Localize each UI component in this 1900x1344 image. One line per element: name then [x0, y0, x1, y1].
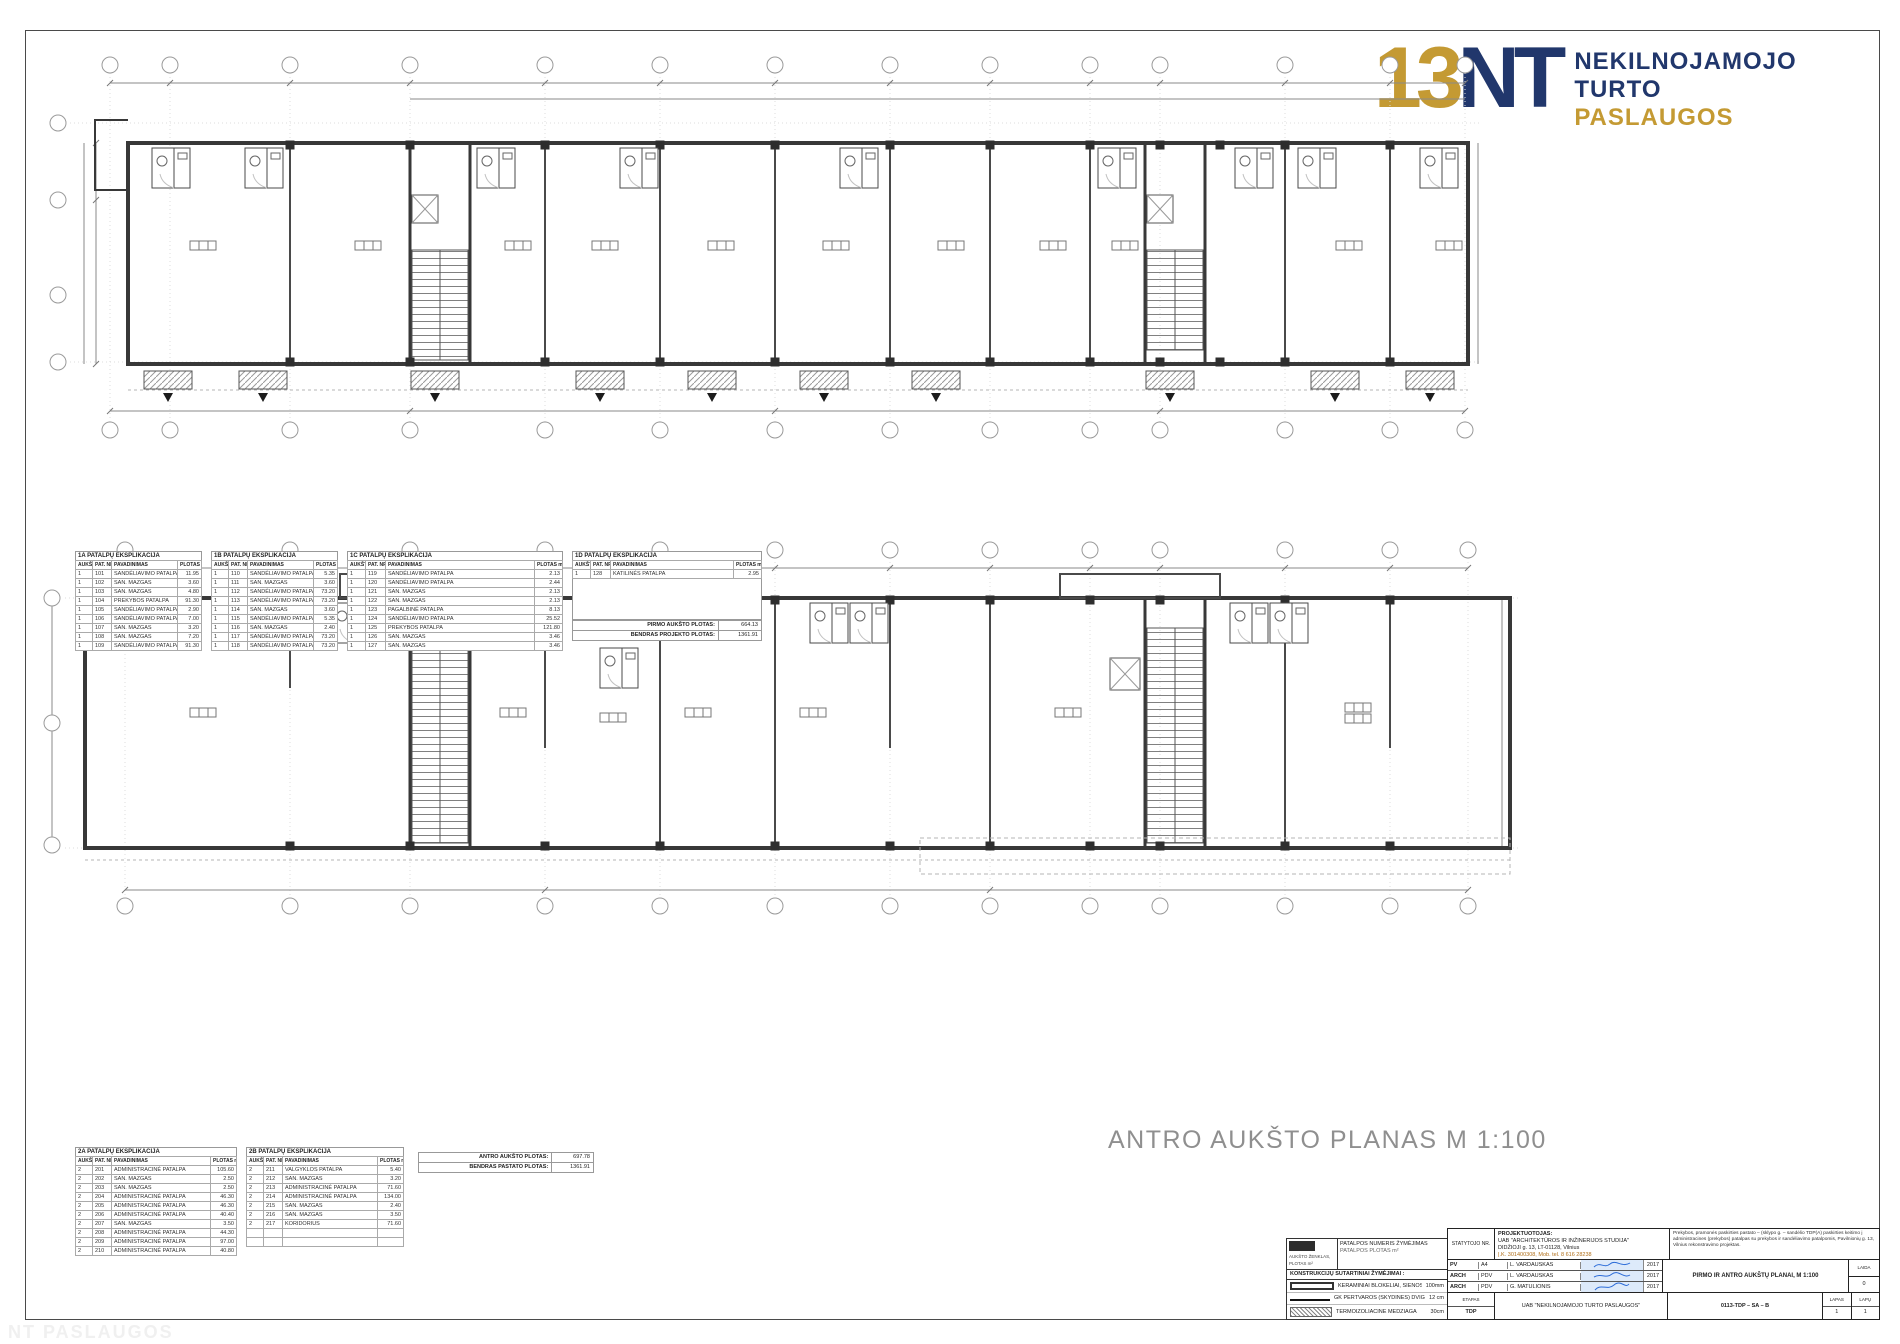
- left-annex-wall: [95, 120, 128, 190]
- signature-icon: [1581, 1282, 1644, 1292]
- table-cell: 664.13: [718, 621, 761, 631]
- table-cell: 97.00: [211, 1238, 237, 1247]
- table-cell: 215: [264, 1202, 283, 1211]
- table-cell: 206: [93, 1211, 112, 1220]
- sig-role: PV: [1448, 1262, 1479, 1269]
- table-cell: SAN. MAZGAS: [386, 588, 535, 597]
- table-row: 2212SAN. MAZGAS3.20: [247, 1175, 404, 1184]
- table-cell: 123: [366, 606, 386, 615]
- table-cell: ADMINISTRACINĖ PATALPA: [112, 1229, 211, 1238]
- table-cell: 2: [247, 1211, 264, 1220]
- table-cell: SAN. MAZGAS: [386, 597, 535, 606]
- table-row: 2211VALGYKLOS PATALPA5.40: [247, 1166, 404, 1175]
- table-row: 1120SANDĖLIAVIMO PATALPA2.44: [348, 579, 563, 588]
- table-cell: SAN. MAZGAS: [112, 1175, 211, 1184]
- owner-no-label: STATYTOJO NR.: [1448, 1229, 1495, 1259]
- table-cell: PAVADINIMAS: [611, 561, 734, 570]
- table-row: 2216SAN. MAZGAS3.50: [247, 1211, 404, 1220]
- table-cell: 5.35: [314, 570, 338, 579]
- designer-line-3: Į.K. 301400308, Mob. tel. 8 616 28238: [1498, 1252, 1666, 1259]
- table-cell: 2: [76, 1238, 93, 1247]
- table-title: 1C PATALPŲ EKSPLIKACIJA: [347, 551, 563, 560]
- table-cell: 104: [93, 597, 112, 606]
- table-cell: 207: [93, 1220, 112, 1229]
- table-cell: ADMINISTRACINĖ PATALPA: [112, 1166, 211, 1175]
- legend-row-name: TERMOIZOLIACINĖ MEDŽIAGA: [1336, 1309, 1427, 1316]
- table-row: PIRMO AUKŠTO PLOTAS:664.13: [573, 621, 762, 631]
- client-name: UAB "NEKILNOJAMOJO TURTO PASLAUGOS": [1495, 1293, 1668, 1319]
- table-cell: 2.50: [211, 1175, 237, 1184]
- sig-name: G. MATULIONIS: [1508, 1284, 1581, 1291]
- etapas-value: TDP: [1448, 1307, 1494, 1320]
- table-row: 1116SAN. MAZGAS2.40: [212, 624, 338, 633]
- table-cell: KATILINĖS PATALPA: [611, 570, 734, 579]
- table-cell: SANDĖLIAVIMO PATALPA: [386, 579, 535, 588]
- signature-row: PV A4 L. VARDAUSKAS 2017: [1448, 1260, 1662, 1271]
- table-cell: 1: [76, 615, 93, 624]
- table-cell: 2.44: [535, 579, 563, 588]
- table-cell: PAVADINIMAS: [386, 561, 535, 570]
- etapas-cell: ETAPAS TDP: [1448, 1293, 1495, 1319]
- table-cell: 1: [212, 615, 229, 624]
- table-cell: 216: [264, 1211, 283, 1220]
- sig-cert: PDV: [1479, 1273, 1508, 1280]
- table-cell: [247, 1229, 264, 1238]
- table-row: 2206ADMINISTRACINĖ PATALPA40.40: [76, 1211, 237, 1220]
- table-cell: 5.40: [378, 1166, 404, 1175]
- table-row: 2210ADMINISTRACINĖ PATALPA40.80: [76, 1247, 237, 1256]
- elevator-shaft: [1147, 195, 1173, 223]
- designer-cell: PROJEKTUOTOJAS: UAB "ARCHITEKTŪROS IR IN…: [1495, 1229, 1670, 1259]
- partition-line-swatch-icon: [1290, 1296, 1330, 1301]
- table-cell: 204: [93, 1193, 112, 1202]
- table-cell: 2: [76, 1220, 93, 1229]
- table-row: 1118SANDĖLIAVIMO PATALPA73.20: [212, 642, 338, 651]
- sig-name: L. VARDAUSKAS: [1508, 1273, 1581, 1280]
- table-cell: 210: [93, 1247, 112, 1256]
- table-cell: 2: [76, 1166, 93, 1175]
- table-cell: ADMINISTRACINĖ PATALPA: [112, 1247, 211, 1256]
- table-cell: 2: [76, 1193, 93, 1202]
- table-row: BENDRAS PASTATO PLOTAS:1361.91: [419, 1163, 594, 1173]
- table-row: 1128KATILINĖS PATALPA2.95: [573, 570, 762, 579]
- table-row: 1109SANDĖLIAVIMO PATALPA91.30: [76, 642, 202, 651]
- signature-row: ARCH PDV G. MATULIONIS 2017: [1448, 1282, 1662, 1292]
- floor2-summary: ANTRO AUKŠTO PLOTAS:697.78BENDRAS PASTAT…: [418, 1152, 594, 1173]
- legend-row-value: 12 cm: [1429, 1295, 1444, 1302]
- room-labels: [190, 241, 1462, 250]
- table-cell: 1: [212, 633, 229, 642]
- table-cell: 44.30: [211, 1229, 237, 1238]
- table-cell: 203: [93, 1184, 112, 1193]
- laida-label: LAIDA: [1849, 1260, 1879, 1277]
- table-cell: 2: [76, 1175, 93, 1184]
- table-cell: [283, 1238, 378, 1247]
- table-row: ANTRO AUKŠTO PLOTAS:697.78: [419, 1153, 594, 1163]
- table-cell: SANDĖLIAVIMO PATALPA: [248, 615, 314, 624]
- legend-strip-title: KONSTRUKCIJŲ SUTARTINIAI ŽYMĖJIMAI :: [1287, 1270, 1447, 1280]
- table-cell: PAGALBINĖ PATALPA: [386, 606, 535, 615]
- legend-row-name: KERAMINIAI BLOKELIAI, SIENOS: [1338, 1283, 1422, 1290]
- table-cell: 121.80: [535, 624, 563, 633]
- table-cell: 2: [247, 1166, 264, 1175]
- table-row: 2209ADMINISTRACINĖ PATALPA97.00: [76, 1238, 237, 1247]
- table-cell: 3.50: [211, 1220, 237, 1229]
- signature-icon: [1581, 1260, 1644, 1270]
- table-row: 1127SAN. MAZGAS3.46: [348, 642, 563, 651]
- elevator-shaft: [1110, 658, 1140, 690]
- table-cell: SAN. MAZGAS: [283, 1202, 378, 1211]
- table-cell: 73.20: [314, 597, 338, 606]
- table-row: 1104PREKYBOS PATALPA91.30: [76, 597, 202, 606]
- designer-label: PROJEKTUOTOJAS:: [1498, 1231, 1666, 1238]
- table-title: 2A PATALPŲ EKSPLIKACIJA: [75, 1147, 237, 1156]
- table-cell: 3.60: [314, 579, 338, 588]
- table-row: 2205ADMINISTRACINĖ PATALPA46.30: [76, 1202, 237, 1211]
- table-cell: SANDĖLIAVIMO PATALPA: [248, 597, 314, 606]
- table-cell: PIRMO AUKŠTO PLOTAS:: [573, 621, 719, 631]
- sig-name: L. VARDAUSKAS: [1508, 1262, 1581, 1269]
- table-cell: AUKŠT.: [76, 1157, 93, 1166]
- legend-note-1: PATALPOS NUMERIS ŽYMĖJIMAS: [1340, 1241, 1445, 1248]
- table-row: 1126SAN. MAZGAS3.46: [348, 633, 563, 642]
- second-floor-caption: ANTRO AUKŠTO PLANAS M 1:100: [1108, 1126, 1547, 1155]
- table-cell: 112: [229, 588, 248, 597]
- laida-cell: LAIDA 0: [1848, 1260, 1879, 1292]
- table-cell: 105: [93, 606, 112, 615]
- stamp-caption: AUKŠTO ŽENKLAS, PLOTAS m²: [1289, 1253, 1335, 1267]
- legend-row-value: 100mm: [1426, 1283, 1444, 1290]
- table-cell: 73.20: [314, 642, 338, 651]
- table-cell: 108: [93, 633, 112, 642]
- table-row: 1103SAN. MAZGAS4.80: [76, 588, 202, 597]
- table-row: 2201ADMINISTRACINĖ PATALPA105.60: [76, 1166, 237, 1175]
- table-cell: 214: [264, 1193, 283, 1202]
- explication-tables-floor2: 2A PATALPŲ EKSPLIKACIJA AUKŠT.PAT. NR.PA…: [75, 1147, 404, 1256]
- table-cell: 109: [93, 642, 112, 651]
- table-cell: SANDĖLIAVIMO PATALPA: [248, 570, 314, 579]
- table-cell: 2.95: [734, 570, 762, 579]
- table-row: 1125PREKYBOS PATALPA121.80: [348, 624, 563, 633]
- table-cell: SAN. MAZGAS: [248, 606, 314, 615]
- table-cell: 1: [76, 642, 93, 651]
- table-cell: SANDĖLIAVIMO PATALPA: [248, 633, 314, 642]
- table-cell: 209: [93, 1238, 112, 1247]
- table-cell: 1: [212, 579, 229, 588]
- table-cell: 2.50: [211, 1184, 237, 1193]
- core-walls: [410, 145, 1205, 362]
- table-row: 1122SAN. MAZGAS2.13: [348, 597, 563, 606]
- first-floor-plan: [40, 45, 1490, 445]
- table-cell: 1: [348, 606, 366, 615]
- table-cell: 11.95: [178, 570, 202, 579]
- table-cell: 71.60: [378, 1184, 404, 1193]
- explication-tables-floor1: 1A PATALPŲ EKSPLIKACIJA AUKŠT.PAT. NR.PA…: [75, 551, 762, 651]
- table-cell: 1: [212, 588, 229, 597]
- designer-line-1: UAB "ARCHITEKTŪROS IR INŽINERIJOS STUDIJ…: [1498, 1238, 1666, 1245]
- signature-row: ARCH PDV L. VARDAUSKAS 2017: [1448, 1271, 1662, 1282]
- table-row: 1123PAGALBINĖ PATALPA8.13: [348, 606, 563, 615]
- drawing-title: PIRMO IR ANTRO AUKŠTŲ PLANAI, M 1:100: [1663, 1260, 1848, 1292]
- table-cell: 91.30: [178, 642, 202, 651]
- table-row: 2204ADMINISTRACINĖ PATALPA46.30: [76, 1193, 237, 1202]
- table-cell: 212: [264, 1175, 283, 1184]
- masonry-wall-swatch-icon: [1290, 1282, 1334, 1290]
- table-cell: 46.30: [211, 1202, 237, 1211]
- lapas-value: 1: [1823, 1307, 1851, 1320]
- table-cell: SANDĖLIAVIMO PATALPA: [112, 615, 178, 624]
- table-cell: 105.60: [211, 1166, 237, 1175]
- table-cell: AUKŠT.: [76, 561, 93, 570]
- table-row: 1105SANDĖLIAVIMO PATALPA2.90: [76, 606, 202, 615]
- explication-table: 2B PATALPŲ EKSPLIKACIJA AUKŠT.PAT. NR.PA…: [246, 1147, 404, 1247]
- table-row: 1107SAN. MAZGAS3.20: [76, 624, 202, 633]
- table-cell: 40.40: [211, 1211, 237, 1220]
- table-cell: 2.40: [314, 624, 338, 633]
- table-cell: AUKŠT.: [212, 561, 229, 570]
- table-cell: [378, 1229, 404, 1238]
- table-cell: 125: [366, 624, 386, 633]
- table-cell: 1: [348, 588, 366, 597]
- table-row: 1115SANDĖLIAVIMO PATALPA5.35: [212, 615, 338, 624]
- table-cell: 110: [229, 570, 248, 579]
- table-cell: SANDĖLIAVIMO PATALPA: [112, 642, 178, 651]
- lapu-label: LAPŲ: [1852, 1293, 1880, 1307]
- table-cell: [283, 1229, 378, 1238]
- table-row: 2208ADMINISTRACINĖ PATALPA44.30: [76, 1229, 237, 1238]
- table-cell: 107: [93, 624, 112, 633]
- table-cell: SAN. MAZGAS: [112, 1220, 211, 1229]
- table-cell: SANDĖLIAVIMO PATALPA: [248, 642, 314, 651]
- table-cell: PAT. NR.: [93, 561, 112, 570]
- table-cell: 127: [366, 642, 386, 651]
- table-cell: [264, 1229, 283, 1238]
- legend-row-value: 30cm: [1431, 1309, 1444, 1316]
- table-cell: 697.78: [552, 1153, 594, 1163]
- table-cell: 91.30: [178, 597, 202, 606]
- explication-table: 1D PATALPŲ EKSPLIKACIJA AUKŠT.PAT. NR.PA…: [572, 551, 762, 641]
- table-cell: AUKŠT.: [348, 561, 366, 570]
- explication-table: 1C PATALPŲ EKSPLIKACIJA AUKŠT.PAT. NR.PA…: [347, 551, 563, 651]
- table-cell: ADMINISTRACINĖ PATALPA: [112, 1238, 211, 1247]
- laida-value: 0: [1849, 1277, 1879, 1293]
- sig-role: ARCH: [1448, 1284, 1479, 1291]
- table-cell: 1361.91: [552, 1163, 594, 1173]
- legend-row-name: GK PERTVAROS (SKYDINĖS) DVIGUBOS: [1334, 1295, 1425, 1302]
- table-cell: PAT. NR.: [591, 561, 611, 570]
- table-cell: 217: [264, 1220, 283, 1229]
- table-cell: PLOTAS m²: [535, 561, 563, 570]
- table-row: [247, 1238, 404, 1247]
- table-row: [247, 1229, 404, 1238]
- table-cell: [264, 1238, 283, 1247]
- sig-role: ARCH: [1448, 1273, 1479, 1280]
- table-cell: 208: [93, 1229, 112, 1238]
- table-cell: 115: [229, 615, 248, 624]
- table-title: 2B PATALPŲ EKSPLIKACIJA: [246, 1147, 404, 1156]
- table-cell: 114: [229, 606, 248, 615]
- table-cell: PAVADINIMAS: [112, 1157, 211, 1166]
- table-cell: 8.13: [535, 606, 563, 615]
- table-cell: 1: [76, 624, 93, 633]
- table-cell: 201: [93, 1166, 112, 1175]
- table-cell: 73.20: [314, 588, 338, 597]
- table-cell: 46.30: [211, 1193, 237, 1202]
- table-cell: PLOTAS m²: [178, 561, 202, 570]
- table-cell: SANDĖLIAVIMO PATALPA: [112, 606, 178, 615]
- table-cell: SAN. MAZGAS: [112, 633, 178, 642]
- table-row: 1102SAN. MAZGAS3.60: [76, 579, 202, 588]
- table-cell: 1: [76, 579, 93, 588]
- table-row: 2214ADMINISTRACINĖ PATALPA134.00: [247, 1193, 404, 1202]
- table-cell: 40.80: [211, 1247, 237, 1256]
- table-cell: SAN. MAZGAS: [112, 579, 178, 588]
- table-cell: PAVADINIMAS: [283, 1157, 378, 1166]
- table-cell: 1: [212, 606, 229, 615]
- table-cell: SAN. MAZGAS: [248, 579, 314, 588]
- table-cell: SAN. MAZGAS: [386, 642, 535, 651]
- table-cell: 103: [93, 588, 112, 597]
- table-cell: PAVADINIMAS: [248, 561, 314, 570]
- explication-table: 1B PATALPŲ EKSPLIKACIJA AUKŠT.PAT. NR.PA…: [211, 551, 338, 651]
- logo-words: NEKILNOJAMOJO TURTO PASLAUGOS: [1574, 38, 1796, 132]
- table-cell: 113: [229, 597, 248, 606]
- table-cell: PLOTAS m²: [211, 1157, 237, 1166]
- table-cell: KORIDORIUS: [283, 1220, 378, 1229]
- table-cell: 1: [348, 579, 366, 588]
- table-cell: [378, 1238, 404, 1247]
- table-cell: PLOTAS m²: [734, 561, 762, 570]
- table-cell: 1: [573, 570, 591, 579]
- table-cell: 2.13: [535, 570, 563, 579]
- corner-watermark: NT PASLAUGOS: [8, 1322, 174, 1343]
- designer-line-2: DIDŽIOJI g. 13, LT-01128, Vilnius: [1498, 1245, 1666, 1252]
- sig-date: 2017: [1644, 1284, 1662, 1291]
- object-description: Prekybos, pramonės paskirties pastato – …: [1670, 1229, 1879, 1259]
- signature-icon: [1581, 1271, 1644, 1281]
- table-cell: 202: [93, 1175, 112, 1184]
- table-cell: 1: [212, 642, 229, 651]
- table-cell: BENDRAS PROJEKTO PLOTAS:: [573, 631, 719, 641]
- table-cell: 116: [229, 624, 248, 633]
- table-cell: PLOTAS m²: [378, 1157, 404, 1166]
- table-row: 2207SAN. MAZGAS3.50: [76, 1220, 237, 1229]
- table-row: 1119SANDĖLIAVIMO PATALPA2.13: [348, 570, 563, 579]
- table-cell: 2: [76, 1211, 93, 1220]
- table-cell: 2: [247, 1193, 264, 1202]
- table-cell: 1: [348, 615, 366, 624]
- table-row: 1113SANDĖLIAVIMO PATALPA73.20: [212, 597, 338, 606]
- table-cell: PAT. NR.: [93, 1157, 112, 1166]
- table-cell: 4.80: [178, 588, 202, 597]
- table-cell: 1: [76, 597, 93, 606]
- table-row: 2215SAN. MAZGAS2.40: [247, 1202, 404, 1211]
- table-cell: 122: [366, 597, 386, 606]
- table-cell: 2: [247, 1184, 264, 1193]
- legend-block: AUKŠTO ŽENKLAS, PLOTAS m² PATALPOS NUMER…: [1286, 1238, 1448, 1320]
- table-cell: SAN. MAZGAS: [248, 624, 314, 633]
- document-number: 0113-TDP – SA – B: [1668, 1293, 1823, 1319]
- table-cell: 3.60: [314, 606, 338, 615]
- table-row: 1101SANDĖLIAVIMO PATALPA11.95: [76, 570, 202, 579]
- table-title: 1D PATALPŲ EKSPLIKACIJA: [572, 551, 762, 560]
- table-cell: SAN. MAZGAS: [112, 588, 178, 597]
- table-cell: 1: [212, 570, 229, 579]
- table-cell: PAVADINIMAS: [112, 561, 178, 570]
- table-cell: ADMINISTRACINĖ PATALPA: [112, 1193, 211, 1202]
- table-cell: 121: [366, 588, 386, 597]
- table-title: 1B PATALPŲ EKSPLIKACIJA: [211, 551, 338, 560]
- table-cell: 134.00: [378, 1193, 404, 1202]
- table-row: BENDRAS PROJEKTO PLOTAS:1361.91: [573, 631, 762, 641]
- table-cell: 2: [247, 1202, 264, 1211]
- table-cell: 111: [229, 579, 248, 588]
- table-cell: 1: [76, 588, 93, 597]
- table-cell: 3.46: [535, 642, 563, 651]
- table-cell: VALGYKLOS PATALPA: [283, 1166, 378, 1175]
- table-cell: 128: [591, 570, 611, 579]
- table-cell: SAN. MAZGAS: [386, 633, 535, 642]
- wc-pods: [152, 148, 1458, 188]
- table-cell: 1: [212, 624, 229, 633]
- table-cell: 1: [348, 633, 366, 642]
- table-cell: 117: [229, 633, 248, 642]
- table-row: 2202SAN. MAZGAS2.50: [76, 1175, 237, 1184]
- table-cell: 2: [76, 1247, 93, 1256]
- table-cell: 2.90: [178, 606, 202, 615]
- table-cell: 2: [76, 1202, 93, 1211]
- table-cell: SANDĖLIAVIMO PATALPA: [386, 570, 535, 579]
- etapas-label: ETAPAS: [1448, 1293, 1494, 1307]
- table-cell: 3.20: [378, 1175, 404, 1184]
- table-cell: 2: [247, 1220, 264, 1229]
- table-cell: 1: [212, 597, 229, 606]
- signature-rows: PV A4 L. VARDAUSKAS 2017 ARCH PDV L. VAR…: [1448, 1260, 1663, 1292]
- table-cell: SAN. MAZGAS: [283, 1211, 378, 1220]
- table-cell: AUKŠT.: [247, 1157, 264, 1166]
- table-row: 1121SAN. MAZGAS2.13: [348, 588, 563, 597]
- table-cell: BENDRAS PASTATO PLOTAS:: [419, 1163, 552, 1173]
- table-cell: 3.60: [178, 579, 202, 588]
- table-cell: 1: [76, 570, 93, 579]
- table-cell: 2: [76, 1229, 93, 1238]
- table-cell: 7.00: [178, 615, 202, 624]
- table-cell: 126: [366, 633, 386, 642]
- lapu-value: 1: [1852, 1307, 1880, 1320]
- table-row: 1111SAN. MAZGAS3.60: [212, 579, 338, 588]
- table-cell: SAN. MAZGAS: [112, 624, 178, 633]
- table-cell: AUKŠT.: [573, 561, 591, 570]
- table-row: 1124SANDĖLIAVIMO PATALPA25.52: [348, 615, 563, 624]
- table-cell: 3.50: [378, 1211, 404, 1220]
- sig-cert: A4: [1479, 1262, 1508, 1269]
- table-cell: 101: [93, 570, 112, 579]
- elevator-shaft: [412, 195, 438, 223]
- table-cell: 2.13: [535, 597, 563, 606]
- sheet-count-cells: LAPAS1 LAPŲ1: [1823, 1293, 1879, 1319]
- table-cell: 25.52: [535, 615, 563, 624]
- explication-table: 2A PATALPŲ EKSPLIKACIJA AUKŠT.PAT. NR.PA…: [75, 1147, 237, 1256]
- logo-word-2: TURTO: [1574, 76, 1796, 104]
- insulation-hatch-swatch-icon: [1290, 1307, 1332, 1317]
- table-cell: 1: [76, 633, 93, 642]
- table-row: 1106SANDĖLIAVIMO PATALPA7.00: [76, 615, 202, 624]
- table-cell: 5.35: [314, 615, 338, 624]
- table-cell: SANDĖLIAVIMO PATALPA: [112, 570, 178, 579]
- lapas-label: LAPAS: [1823, 1293, 1851, 1307]
- table-cell: 1: [348, 570, 366, 579]
- table-row: 1112SANDĖLIAVIMO PATALPA73.20: [212, 588, 338, 597]
